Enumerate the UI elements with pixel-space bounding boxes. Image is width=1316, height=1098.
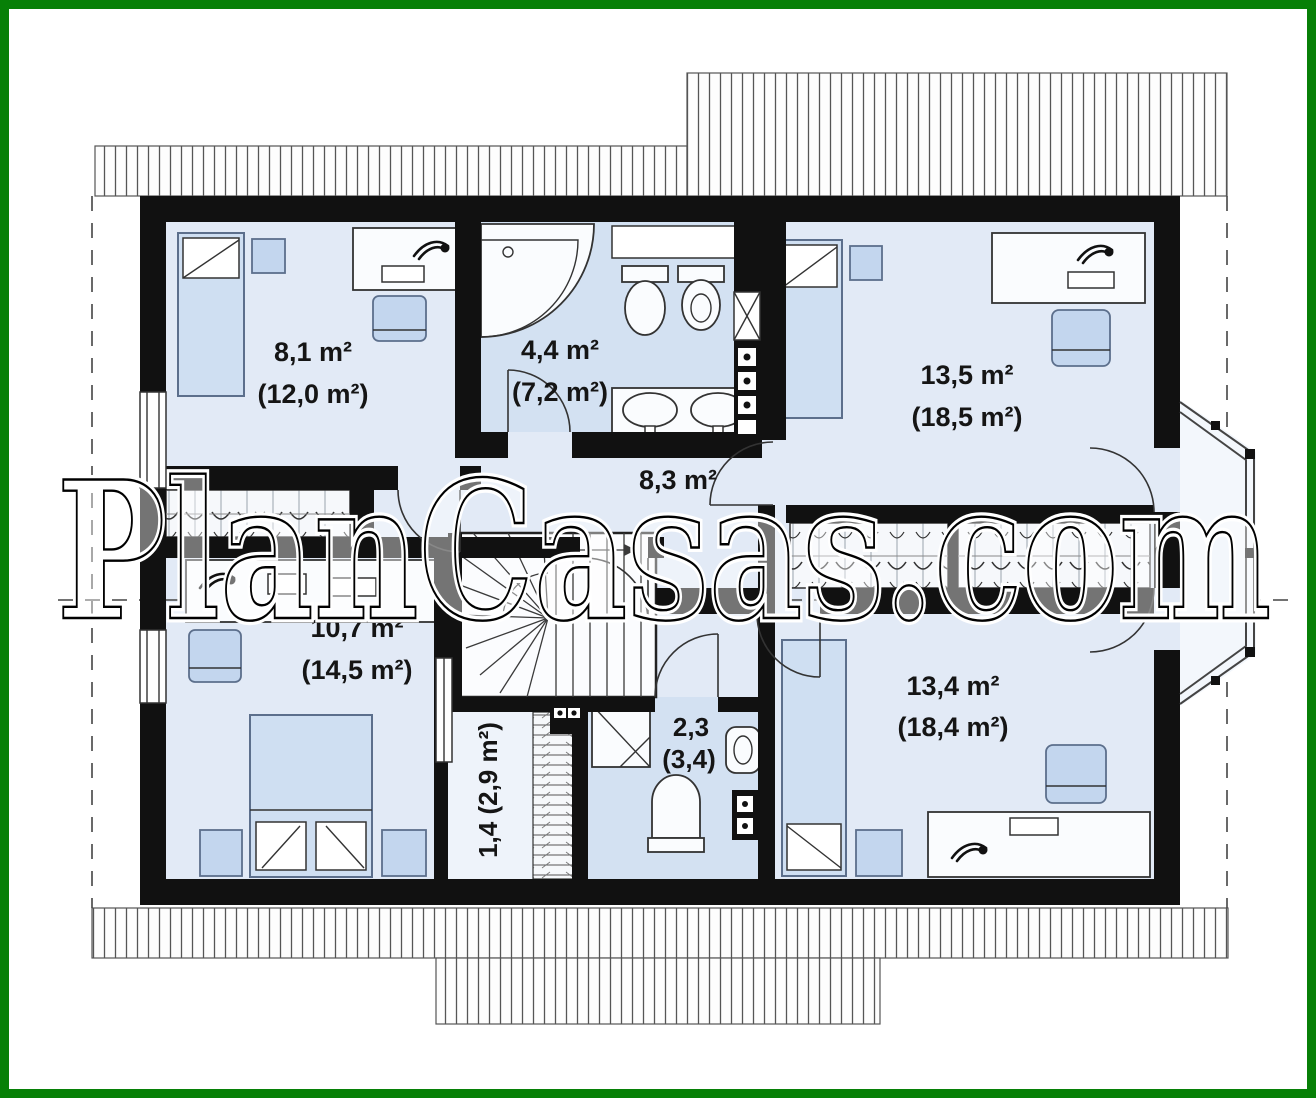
roof-eaves-top xyxy=(95,73,1227,196)
label-bedroom-bottom-right-total: (18,4 m²) xyxy=(897,712,1008,742)
label-bedroom-top-right-area: 13,5 m² xyxy=(920,360,1013,390)
label-bedroom-bottom-right-area: 13,4 m² xyxy=(906,671,999,701)
label-shower-room-total: (3,4) xyxy=(662,744,715,774)
label-shower-room-area: 2,3 xyxy=(673,712,709,742)
label-bedroom-top-left-area: 8,1 m² xyxy=(274,337,352,367)
label-bedroom-top-right-total: (18,5 m²) xyxy=(911,402,1022,432)
floor-plan-page: 8,1 m² (12,0 m²) 4,4 m² (7,2 m²) 13,5 m²… xyxy=(0,0,1316,1098)
label-closet: 1,4 (2,9 m²) xyxy=(473,722,503,858)
watermark-text-outline: PlanCasas.com xyxy=(57,440,1272,663)
label-bedroom-top-left-total: (12,0 m²) xyxy=(257,379,368,409)
label-bathroom-area: 4,4 m² xyxy=(521,335,599,365)
label-bathroom-total: (7,2 m²) xyxy=(512,377,608,407)
closet-shelves xyxy=(533,712,573,879)
floor-plan: 8,1 m² (12,0 m²) 4,4 m² (7,2 m²) 13,5 m²… xyxy=(0,0,1316,1098)
watermark: PlanCasas.com PlanCasas.com xyxy=(57,440,1272,663)
roof-eaves-bottom xyxy=(92,908,1228,1024)
